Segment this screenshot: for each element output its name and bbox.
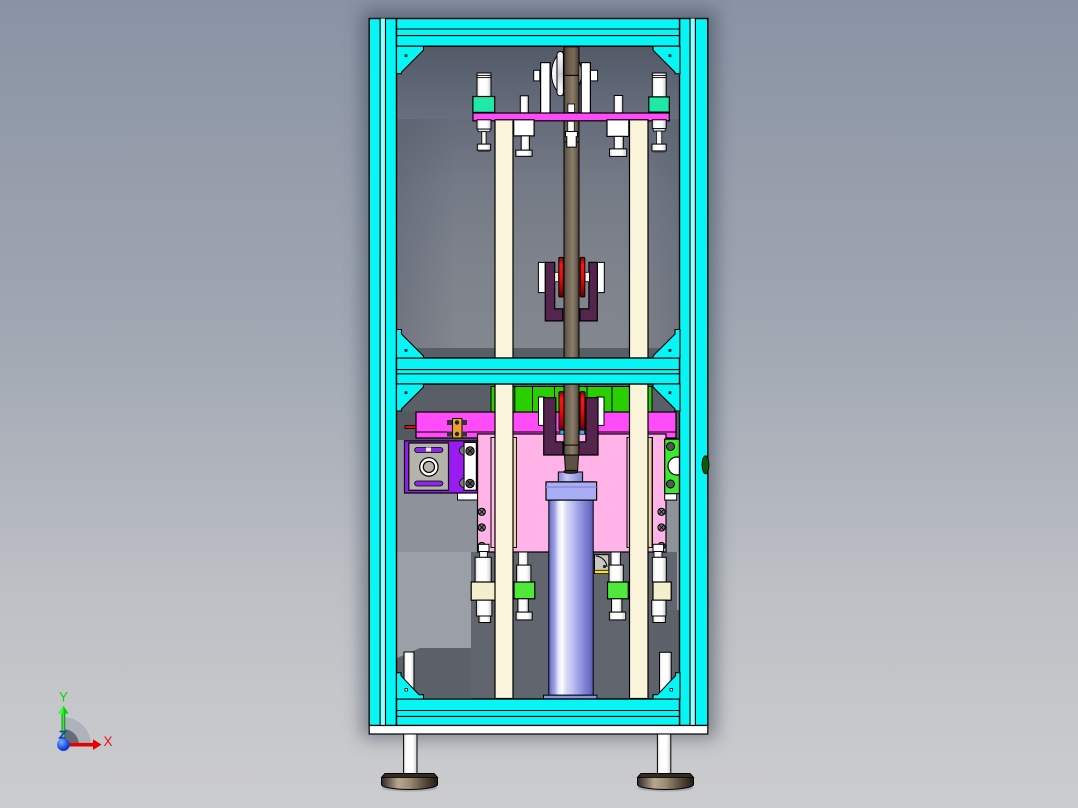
svg-text:X: X: [104, 734, 113, 749]
svg-text:Y: Y: [59, 690, 68, 705]
